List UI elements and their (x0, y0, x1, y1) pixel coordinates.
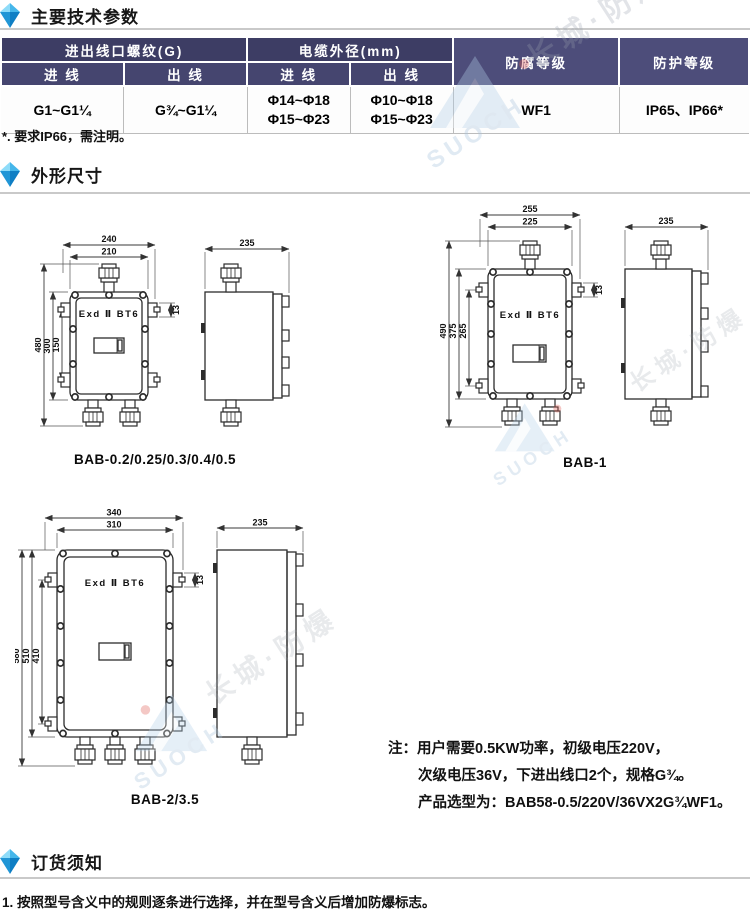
nameplate (99, 643, 131, 660)
cell-protection: IP65、IP66* (619, 86, 749, 134)
cell-cable-in: Φ14~Φ18 Φ15~Φ23 (247, 86, 350, 134)
drawing-bab1: 255 225 490 375 265 13 235 (440, 203, 750, 448)
dim-lines: 340 310 580 510 410 13 235 (15, 508, 303, 766)
dim-flange: 13 (594, 285, 604, 295)
front-view: Exd Ⅱ BT6 (45, 550, 185, 764)
cable-gland-top (221, 264, 241, 292)
dim-depth: 235 (252, 518, 267, 528)
col-thread-group: 进出线口螺纹(G) (1, 37, 247, 62)
ordering-item-1: 1. 按照型号含义中的规则逐条进行选择，并在型号含义后增加防爆标志。 (2, 891, 436, 911)
ex-marking: Exd Ⅱ BT6 (79, 309, 139, 320)
cable-glands-bottom (502, 399, 560, 425)
datasheet-page: 主要技术参数 进出线口螺纹(G) 电缆外径(mm) 防腐等级 防护等级 进 线 … (0, 0, 750, 915)
bolts (488, 269, 572, 399)
drawing-caption-c: BAB-2/3.5 (15, 792, 315, 807)
section-title: 主要技术参数 (31, 3, 139, 28)
dim-width-inner: 225 (522, 217, 537, 227)
note-block: 注：用户需要0.5KW功率，初级电压220V， 次级电压36V，下进出线口2个，… (388, 736, 750, 817)
drawing-caption-a: BAB-0.2/0.25/0.3/0.4/0.5 (35, 452, 275, 467)
col-protection: 防护等级 (619, 37, 749, 86)
cable-glands-bottom (83, 400, 140, 426)
side-view (213, 550, 303, 764)
drawing-bab05: 240 210 480 300 150 13 235 (35, 233, 300, 448)
ex-marking: Exd Ⅱ BT6 (85, 578, 145, 589)
dim-width-outer: 255 (522, 204, 537, 214)
cable-gland-bottom (221, 400, 241, 426)
cable-gland-top (99, 264, 119, 292)
ex-marking: Exd Ⅱ BT6 (500, 310, 560, 321)
dim-width-inner: 210 (101, 247, 116, 257)
front-view: Exd Ⅱ BT6 (476, 241, 584, 425)
cable-gland-bottom (651, 399, 671, 425)
cable-in-line2: Φ15~Φ23 (249, 110, 349, 129)
section-title: 外形尺寸 (31, 162, 103, 187)
parameters-table: 进出线口螺纹(G) 电缆外径(mm) 防腐等级 防护等级 进 线 出 线 进 线… (0, 36, 750, 134)
dim-height-mid: 375 (448, 323, 458, 338)
col-cable-inlet: 进 线 (247, 62, 350, 86)
note-line-3: 产品选型为：BAB58-0.5/220V/36VX2G¾WF1。 (418, 790, 750, 817)
cable-out-line2: Φ15~Φ23 (352, 110, 452, 129)
dim-depth: 235 (239, 238, 254, 248)
drawing-caption-b: BAB-1 (440, 455, 730, 470)
cable-gland-top (651, 241, 671, 269)
section-ordering: 订货须知 (0, 849, 103, 874)
dim-height-mid: 510 (21, 648, 31, 663)
cell-anticorrosion: WF1 (453, 86, 619, 134)
note-line-2: 次级电压36V，下进出线口2个，规格G¾。 (418, 763, 750, 790)
col-thread-inlet: 进 线 (1, 62, 124, 86)
gem-icon (0, 162, 20, 187)
side-view (201, 264, 289, 426)
col-thread-outlet: 出 线 (124, 62, 248, 86)
gem-icon (0, 3, 20, 28)
dim-height-inner: 410 (31, 648, 41, 663)
dim-depth: 235 (658, 216, 673, 226)
gem-icon (0, 849, 20, 874)
drawing-bab2: 340 310 580 510 410 13 235 (15, 508, 335, 783)
cable-gland-bottom (242, 737, 262, 764)
section-title: 订货须知 (31, 849, 103, 874)
dim-height-inner: 150 (51, 337, 61, 352)
col-anticorrosion: 防腐等级 (453, 37, 619, 86)
col-cable-outlet: 出 线 (350, 62, 453, 86)
front-view: Exd Ⅱ BT6 (58, 264, 160, 426)
nameplate (94, 338, 124, 353)
col-cable-group: 电缆外径(mm) (247, 37, 453, 62)
mounting-ears (45, 573, 185, 731)
cell-cable-out: Φ10~Φ18 Φ15~Φ23 (350, 86, 453, 134)
section-main-params: 主要技术参数 (0, 3, 139, 28)
dim-flange: 13 (171, 305, 181, 315)
table-footnote: *. 要求IP66，需注明。 (2, 126, 132, 145)
mounting-ears (476, 283, 584, 393)
divider (0, 877, 750, 879)
divider (0, 28, 750, 30)
side-view (621, 241, 708, 425)
dim-flange: 13 (195, 575, 205, 585)
cable-in-line1: Φ14~Φ18 (249, 91, 349, 110)
dim-height-inner: 265 (458, 323, 468, 338)
dim-width-outer: 240 (101, 234, 116, 244)
dim-width-inner: 310 (106, 520, 121, 530)
divider (0, 192, 750, 194)
note-line-1: 注：用户需要0.5KW功率，初级电压220V， (388, 736, 750, 763)
cable-glands-bottom (75, 737, 155, 764)
dim-height-outer: 490 (440, 323, 448, 338)
section-dimensions: 外形尺寸 (0, 162, 103, 187)
cable-gland-top (520, 241, 540, 269)
cable-out-line1: Φ10~Φ18 (352, 91, 452, 110)
cell-thread-out: G¾~G1¼ (124, 86, 248, 134)
nameplate (513, 345, 546, 362)
dim-width-outer: 340 (106, 508, 121, 518)
